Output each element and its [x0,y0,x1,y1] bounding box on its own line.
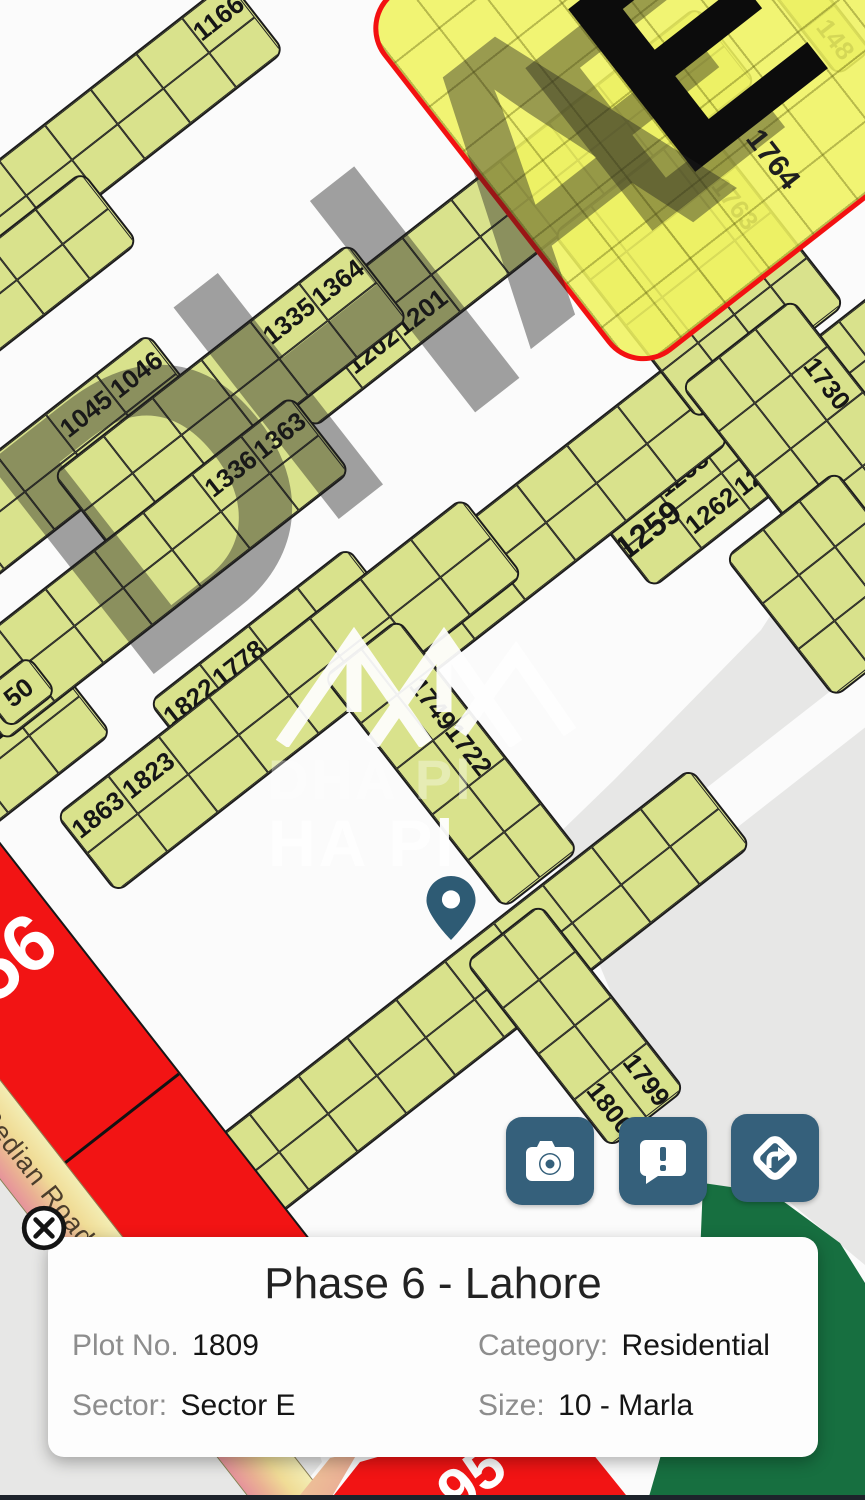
logo-text: HA Pl [268,810,628,876]
plot-info-card: Phase 6 - Lahore Plot No. 1809 Category:… [48,1237,818,1457]
camera-icon [524,1139,576,1183]
sector-label: Sector: [72,1389,167,1422]
directions-icon [747,1130,803,1186]
directions-button[interactable] [731,1114,819,1202]
logo-roof-icon [268,612,578,747]
camera-button[interactable] [506,1117,594,1205]
plot-no-value: 1809 [192,1329,259,1362]
bottom-edge-bar [0,1495,865,1500]
plot-no-label: Plot No. [72,1329,179,1362]
category-label: Category: [478,1329,608,1362]
map-app-screen: 1166119812021201119912581262126112591045… [0,0,865,1500]
sector-value: Sector E [181,1389,296,1422]
location-pin-icon[interactable] [426,876,476,940]
logo-text-faint: DHA Pl [268,752,628,808]
close-icon [20,1204,68,1252]
app-logo-watermark: DHA Pl HA Pl [268,612,628,876]
report-issue-button[interactable] [619,1117,707,1205]
size-label: Size: [478,1389,545,1422]
size-value: 10 - Marla [558,1389,693,1422]
red-plot-number: 956 [0,894,74,1049]
card-title: Phase 6 - Lahore [48,1259,818,1309]
category-value: Residential [622,1329,770,1362]
report-bubble-icon [638,1136,688,1186]
close-card-button[interactable] [20,1204,68,1252]
